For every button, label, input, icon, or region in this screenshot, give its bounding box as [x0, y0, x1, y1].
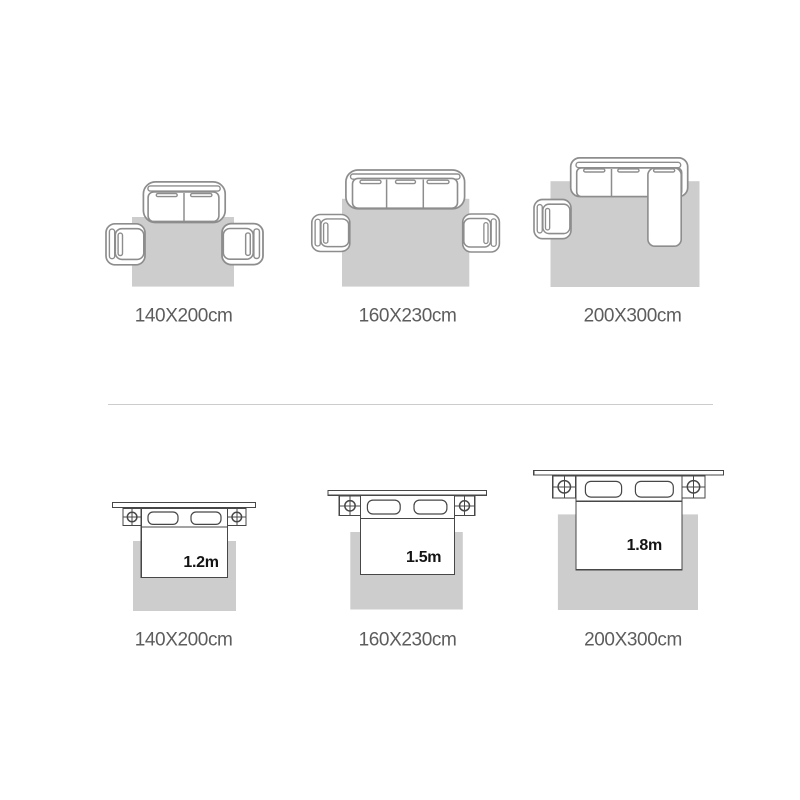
svg-text:160X230cm: 160X230cm	[359, 306, 457, 327]
svg-text:140X200cm: 140X200cm	[135, 306, 233, 327]
svg-text:1.8m: 1.8m	[627, 537, 662, 554]
svg-text:1.2m: 1.2m	[183, 554, 218, 571]
svg-text:200X300cm: 200X300cm	[584, 629, 682, 650]
svg-text:160X230cm: 160X230cm	[359, 629, 457, 650]
svg-text:1.5m: 1.5m	[406, 549, 441, 566]
svg-text:200X300cm: 200X300cm	[584, 306, 682, 327]
svg-text:140X200cm: 140X200cm	[135, 629, 233, 650]
